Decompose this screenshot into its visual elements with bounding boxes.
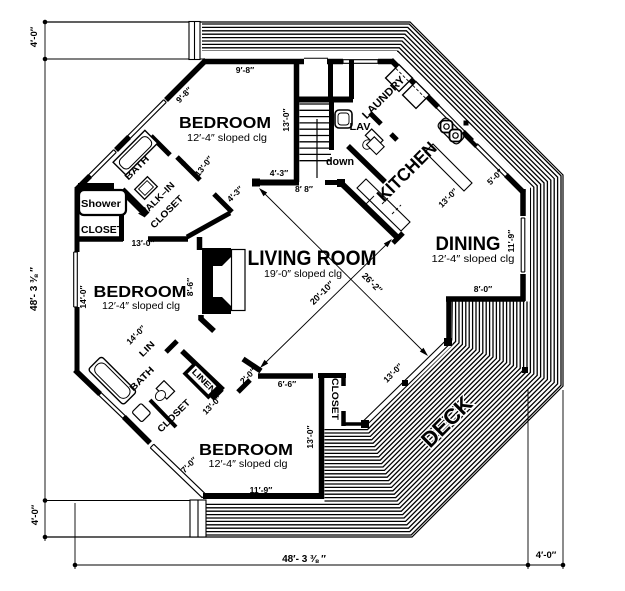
- svg-text:8′-6″: 8′-6″: [185, 278, 195, 296]
- svg-text:4′-0″: 4′-0″: [29, 26, 40, 47]
- svg-text:Shower: Shower: [81, 198, 121, 210]
- svg-text:48′- 3 ⅜ ″: 48′- 3 ⅜ ″: [29, 267, 40, 311]
- svg-text:8′ 8″: 8′ 8″: [295, 184, 313, 194]
- svg-text:48′- 3 ⅜ ″: 48′- 3 ⅜ ″: [282, 554, 326, 565]
- svg-text:DINING: DINING: [436, 234, 501, 255]
- svg-text:CLOSET: CLOSET: [329, 378, 340, 420]
- svg-text:12′-4″ sloped clg: 12′-4″ sloped clg: [432, 254, 515, 265]
- svg-text:8′-0″: 8′-0″: [474, 284, 492, 294]
- svg-text:4′-0″: 4′-0″: [30, 504, 41, 525]
- svg-text:4′-0″: 4′-0″: [536, 550, 557, 561]
- svg-text:12′-4″ sloped clg: 12′-4″ sloped clg: [187, 133, 267, 144]
- svg-text:BEDROOM: BEDROOM: [199, 442, 293, 459]
- svg-text:13′-0″: 13′-0″: [305, 425, 315, 448]
- svg-text:13′-0″: 13′-0″: [131, 238, 154, 248]
- svg-text:BEDROOM: BEDROOM: [94, 284, 187, 301]
- svg-text:11′-9″: 11′-9″: [250, 485, 273, 495]
- svg-text:12′-4″ sloped clg: 12′-4″ sloped clg: [209, 459, 288, 470]
- svg-text:19′-0″ sloped clg: 19′-0″ sloped clg: [264, 269, 342, 280]
- svg-text:LAV: LAV: [350, 122, 371, 133]
- svg-text:down: down: [326, 156, 354, 168]
- svg-text:12′-4″ sloped clg: 12′-4″ sloped clg: [102, 301, 180, 312]
- svg-text:4′-3″: 4′-3″: [270, 168, 288, 178]
- svg-text:9′-8″: 9′-8″: [236, 65, 254, 75]
- svg-text:13′-0″: 13′-0″: [281, 108, 291, 131]
- svg-text:11′-9″: 11′-9″: [506, 230, 516, 253]
- svg-text:6′-6″: 6′-6″: [278, 379, 296, 389]
- svg-text:CLOSET: CLOSET: [81, 224, 124, 236]
- svg-text:BEDROOM: BEDROOM: [179, 115, 271, 132]
- svg-text:LIVING ROOM: LIVING ROOM: [248, 247, 377, 270]
- svg-text:14′-0″: 14′-0″: [78, 285, 88, 308]
